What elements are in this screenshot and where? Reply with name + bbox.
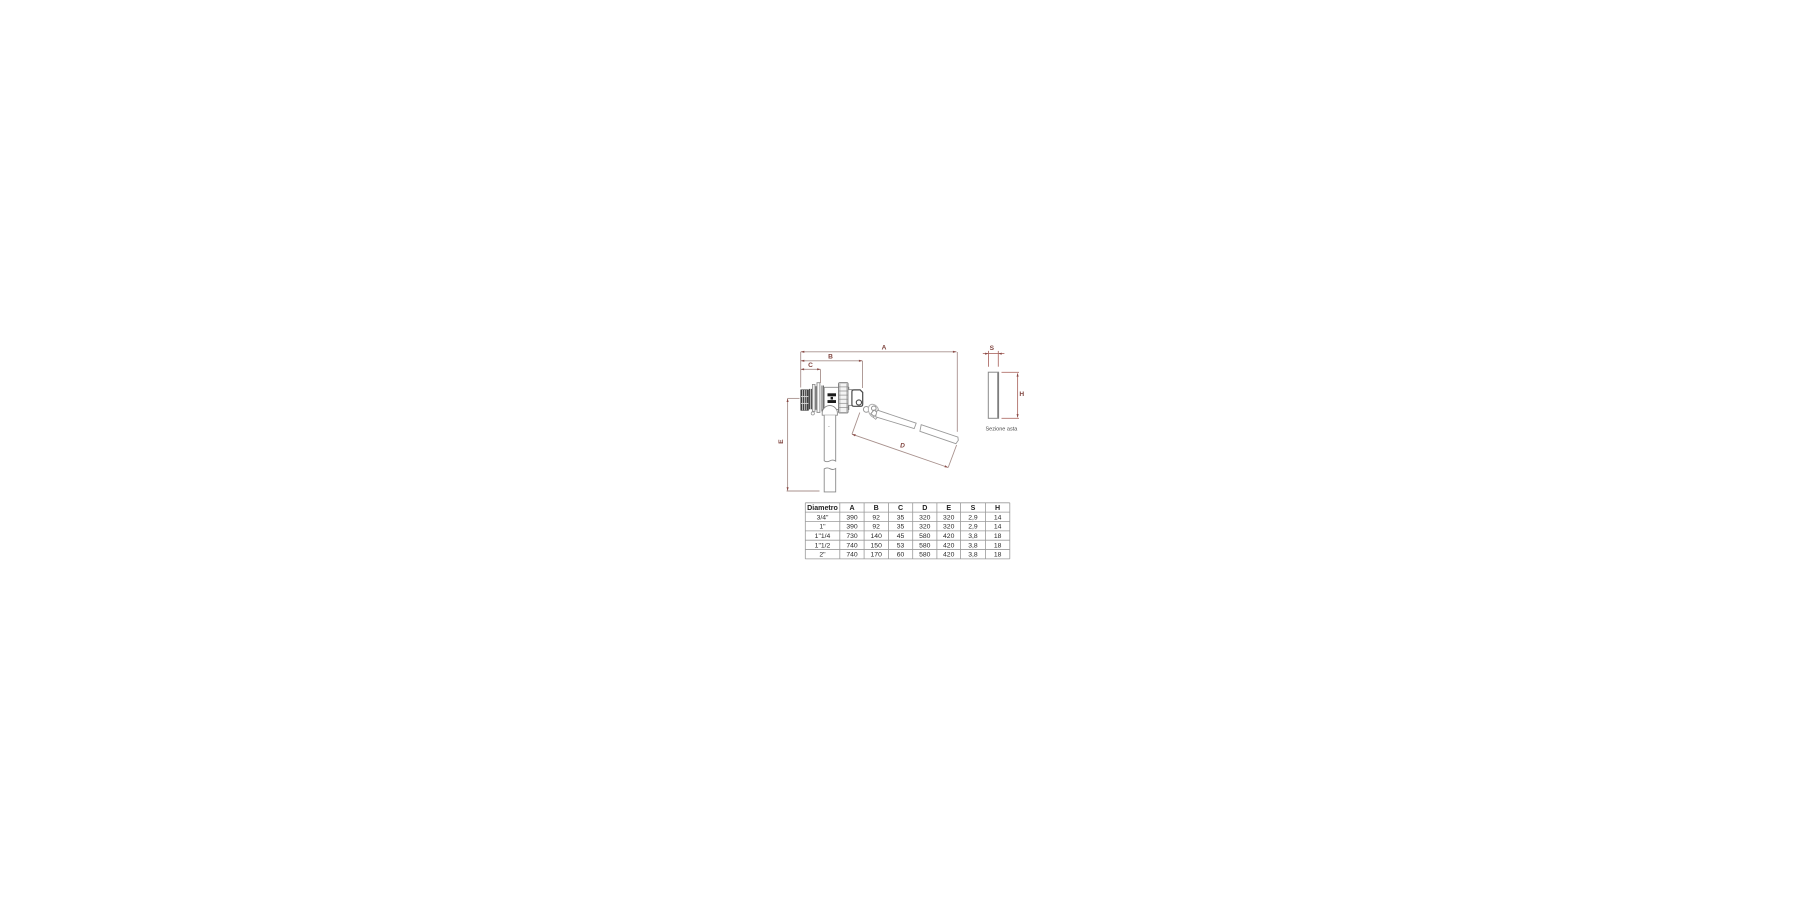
svg-text:35: 35 (897, 524, 905, 531)
svg-text:3,8: 3,8 (968, 542, 978, 549)
svg-text:420: 420 (943, 552, 955, 559)
svg-text:Sezione asta: Sezione asta (985, 427, 1018, 433)
svg-text:320: 320 (943, 524, 955, 531)
svg-text:60: 60 (897, 552, 905, 559)
svg-text:D: D (900, 443, 905, 450)
svg-text:420: 420 (943, 542, 955, 549)
svg-text:3,8: 3,8 (968, 533, 978, 540)
svg-text:320: 320 (943, 514, 955, 521)
svg-text:A: A (849, 504, 854, 512)
svg-text:H: H (995, 504, 1000, 512)
svg-text:E: E (778, 439, 785, 444)
svg-text:740: 740 (846, 542, 858, 549)
svg-text:150: 150 (871, 542, 883, 549)
svg-text:2,9: 2,9 (968, 524, 978, 531)
svg-text:18: 18 (994, 542, 1002, 549)
svg-text:E: E (946, 504, 951, 512)
svg-text:2": 2" (819, 552, 826, 559)
svg-text:580: 580 (919, 542, 931, 549)
svg-text:420: 420 (943, 533, 955, 540)
svg-text:390: 390 (846, 514, 858, 521)
svg-text:B: B (874, 504, 879, 512)
svg-text:53: 53 (897, 542, 905, 549)
svg-text:3/4": 3/4" (817, 514, 829, 521)
svg-text:390: 390 (846, 524, 858, 531)
svg-text:14: 14 (994, 514, 1002, 521)
svg-text:S: S (971, 504, 976, 512)
svg-text:2,9: 2,9 (968, 514, 978, 521)
svg-text:580: 580 (919, 552, 931, 559)
svg-text:S: S (990, 345, 995, 352)
svg-text:740: 740 (846, 552, 858, 559)
svg-text:92: 92 (872, 524, 880, 531)
svg-text:35: 35 (897, 514, 905, 521)
svg-text:170: 170 (871, 552, 883, 559)
svg-text:1": 1" (819, 524, 826, 531)
svg-text:C: C (808, 362, 813, 369)
svg-text:580: 580 (919, 533, 931, 540)
svg-text:320: 320 (919, 514, 931, 521)
svg-text:92: 92 (872, 514, 880, 521)
svg-text:1"1/4: 1"1/4 (815, 533, 831, 540)
svg-text:A: A (882, 345, 887, 352)
svg-text:3,8: 3,8 (968, 552, 978, 559)
svg-text:18: 18 (994, 552, 1002, 559)
svg-text:18: 18 (994, 533, 1002, 540)
svg-text:45: 45 (897, 533, 905, 540)
svg-text:140: 140 (871, 533, 883, 540)
svg-text:1"1/2: 1"1/2 (815, 542, 831, 549)
svg-text:C: C (898, 504, 903, 512)
svg-text:320: 320 (919, 524, 931, 531)
svg-text:730: 730 (846, 533, 858, 540)
svg-text:B: B (828, 354, 833, 361)
svg-text:D: D (922, 504, 927, 512)
svg-text:14: 14 (994, 524, 1002, 531)
svg-text:Diametro: Diametro (807, 504, 838, 512)
svg-text:H: H (1019, 391, 1024, 398)
